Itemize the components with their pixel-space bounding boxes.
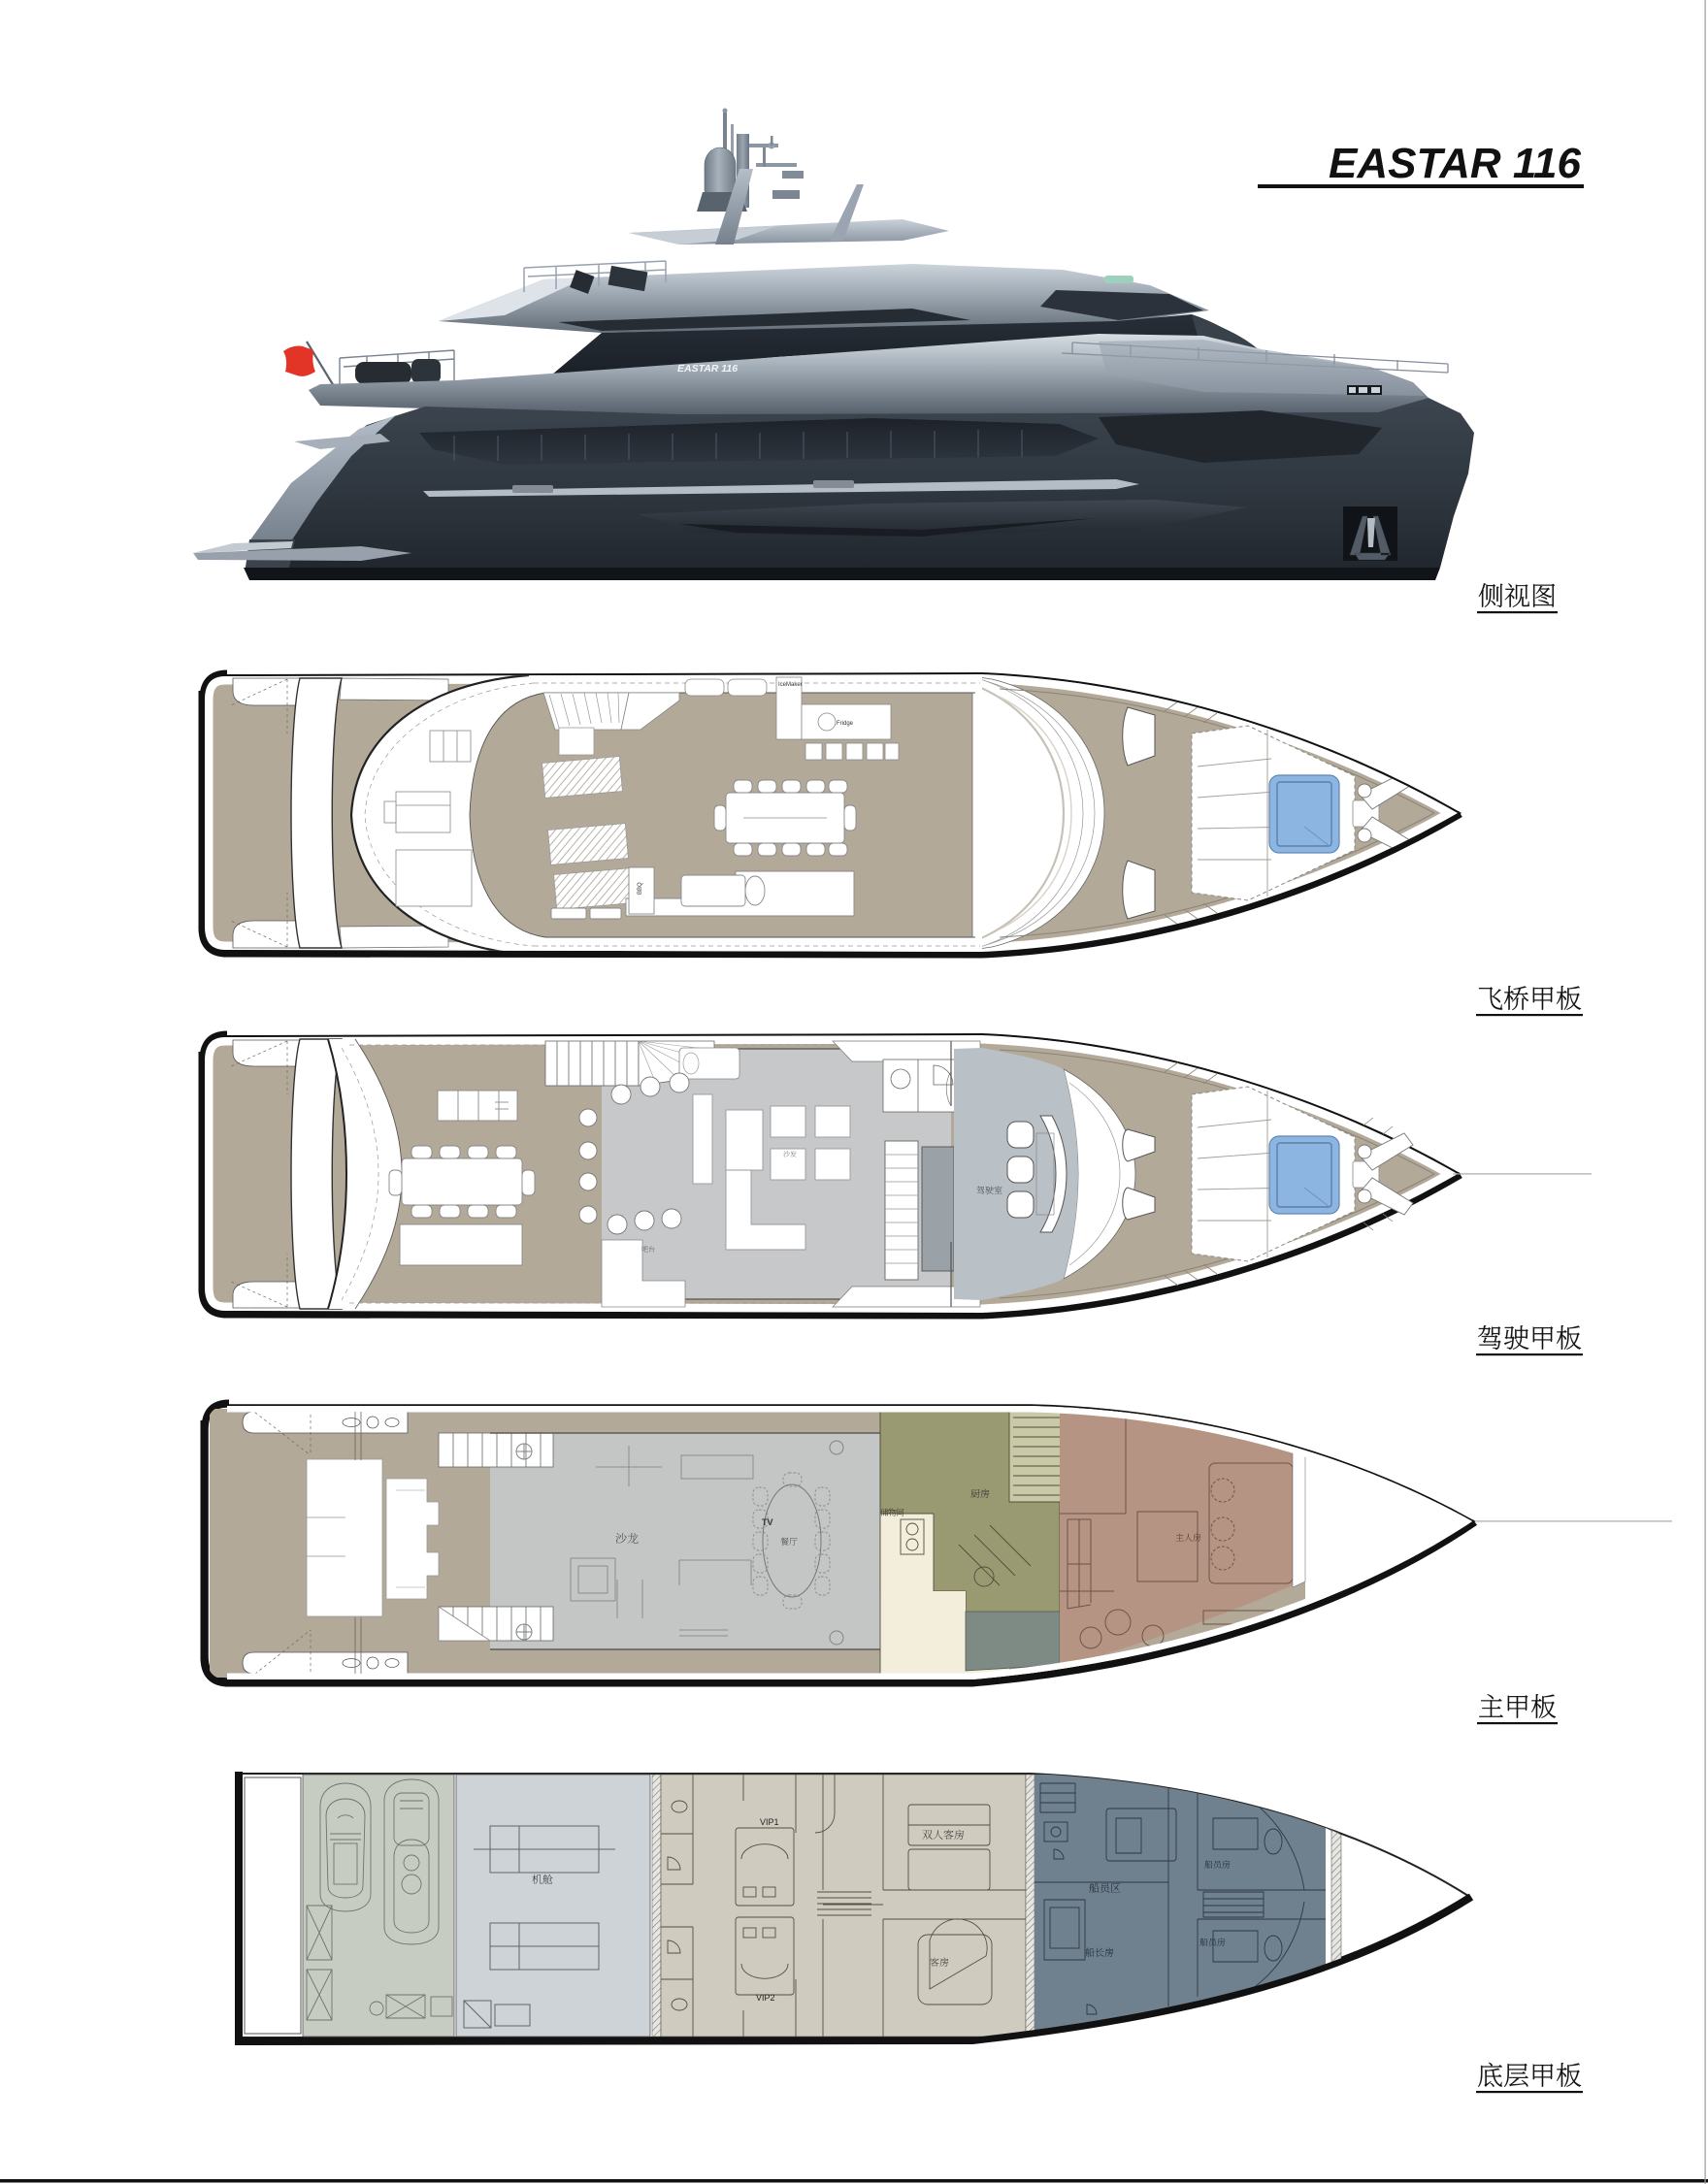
svg-text:EASTAR 116: EASTAR 116 <box>1329 140 1582 187</box>
svg-text:TV: TV <box>762 1517 773 1527</box>
svg-text:Fridge: Fridge <box>837 721 854 727</box>
svg-text:VIP1: VIP1 <box>760 1817 779 1827</box>
svg-text:IceMaker: IceMaker <box>778 682 803 688</box>
svg-text:BBQ: BBQ <box>638 882 643 895</box>
svg-text:EASTAR 116: EASTAR 116 <box>677 363 738 375</box>
svg-text:VIP2: VIP2 <box>756 1993 775 2003</box>
